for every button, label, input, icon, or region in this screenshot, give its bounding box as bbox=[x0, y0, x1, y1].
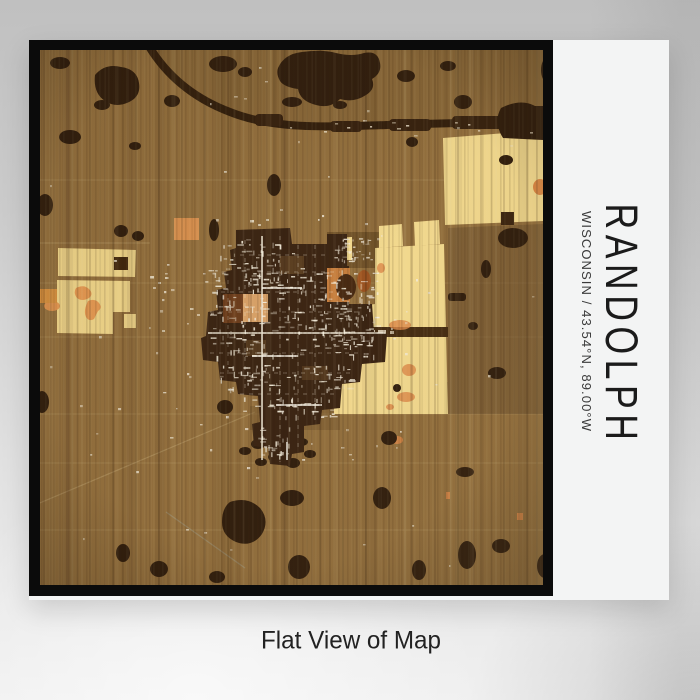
svg-text:Flat View of Map: Flat View of Map bbox=[261, 627, 441, 655]
